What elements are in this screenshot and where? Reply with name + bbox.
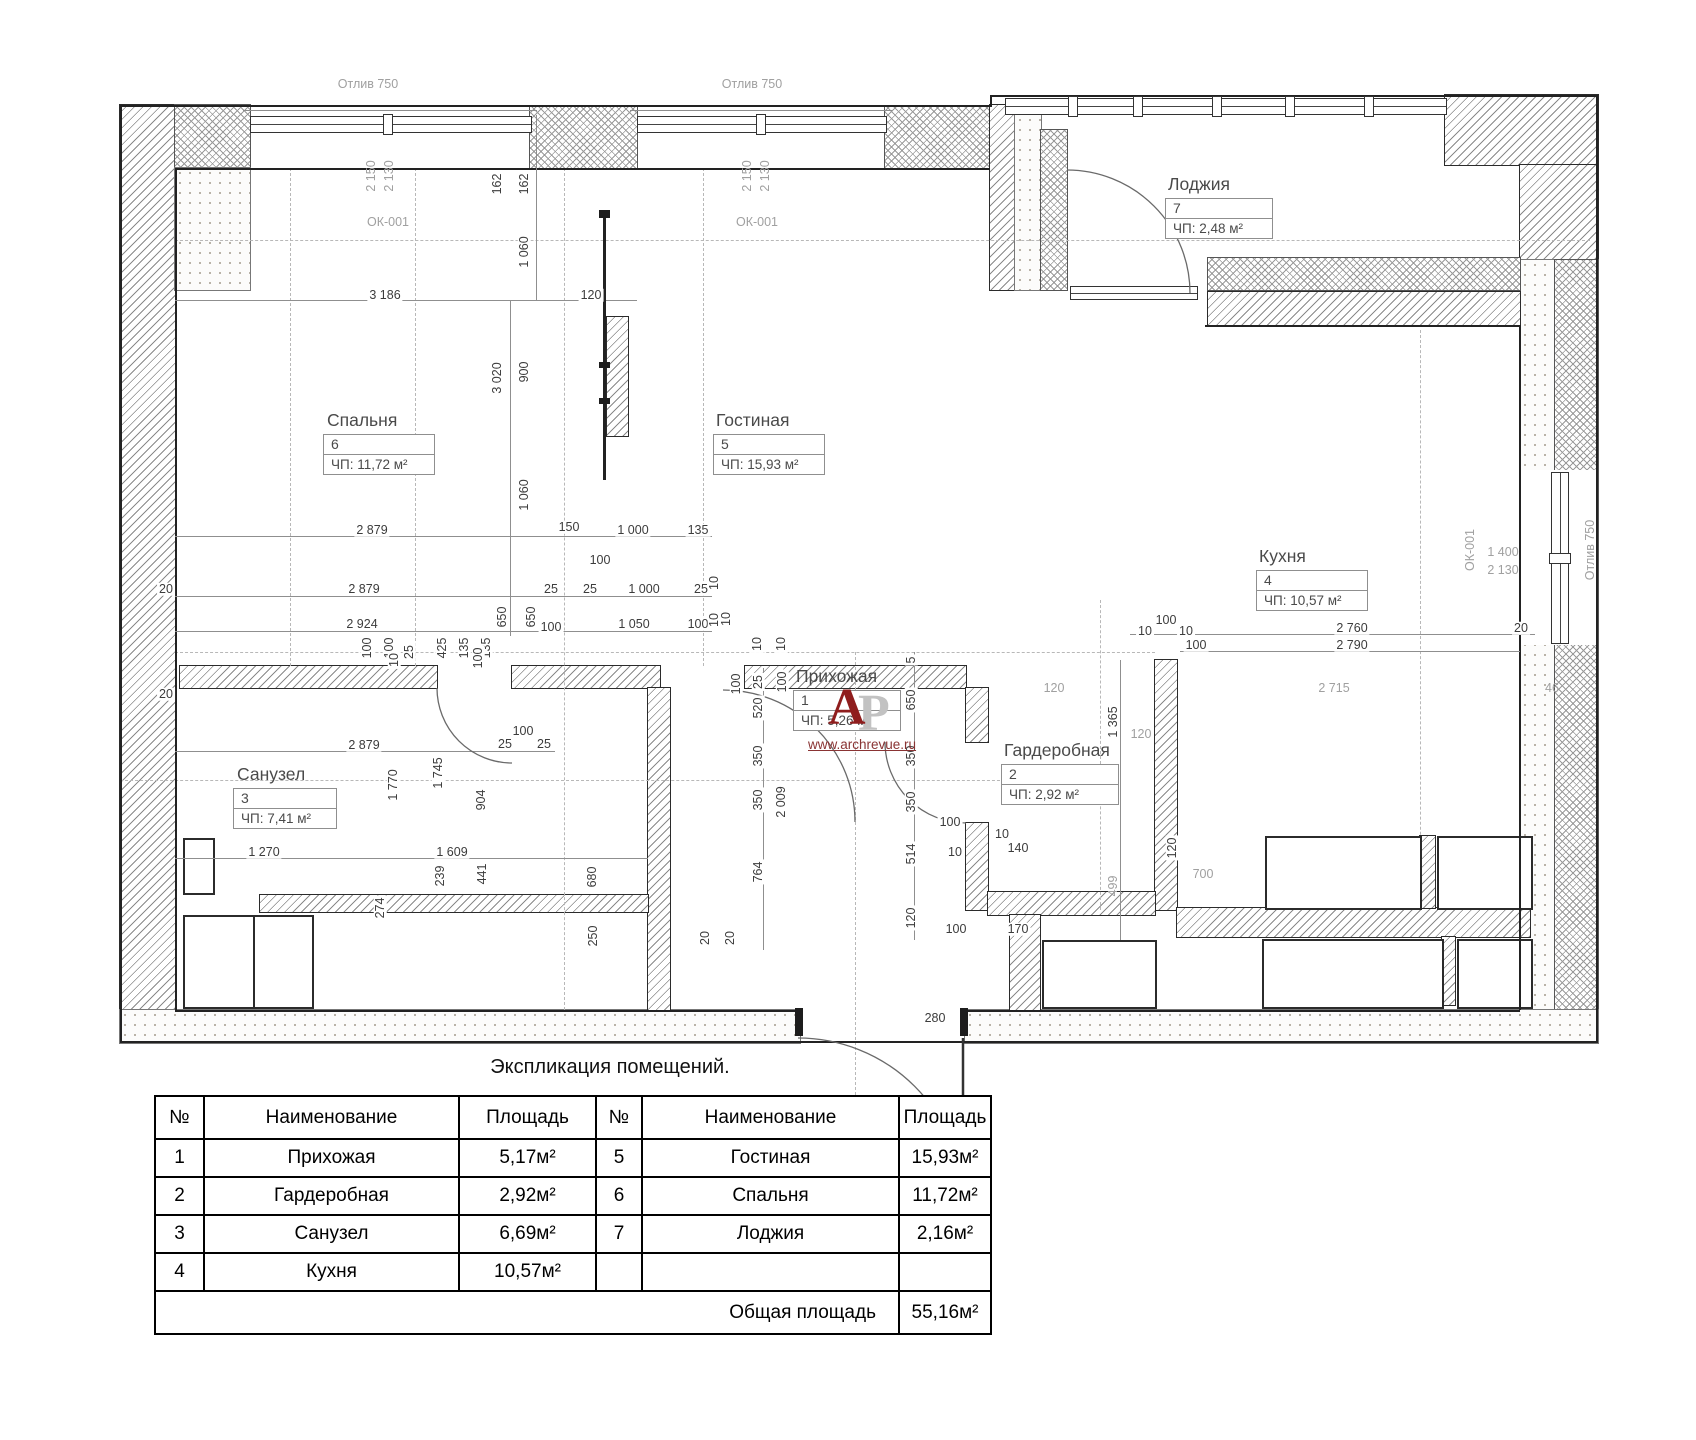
dimension-label: 10 [946, 846, 964, 859]
dimension-label: 10 [720, 610, 733, 628]
dimension-label: 20 [157, 583, 175, 596]
dimension-label: 100 [944, 923, 969, 936]
dimension-label: 1 770 [387, 767, 400, 802]
table-cell: Лоджия [642, 1215, 899, 1253]
dimension-label: 3 186 [367, 289, 402, 302]
dimension-label: 10 [751, 635, 764, 653]
dimension-label: 3 020 [491, 360, 504, 395]
table-cell: 3 [155, 1215, 204, 1253]
room-area: ЧП: 2,92 м² [1002, 785, 1118, 804]
dimension-label: 135 [458, 636, 471, 661]
door-frame [795, 1008, 803, 1036]
dimension-label: 650 [525, 605, 538, 630]
room-tag: 2ЧП: 2,92 м² [1001, 764, 1119, 805]
room-tag: 4ЧП: 10,57 м² [1256, 570, 1368, 611]
table-header-cell: № [596, 1096, 642, 1139]
dimension-label: 100 [539, 621, 564, 634]
table-title: Экспликация помещений. [420, 1056, 800, 1079]
dimension-label: 10 [708, 574, 721, 592]
dimension-label: Отлив 750 [720, 78, 784, 91]
dimension-label: 2 130 [383, 158, 396, 193]
dimension-label: 100 [1184, 639, 1209, 652]
dimension-label: 274 [374, 896, 387, 921]
dimension-label: 1 609 [434, 846, 469, 859]
watermark-url: www.archrevue.ru [808, 738, 916, 752]
dimension-label: 1 060 [518, 234, 531, 269]
table-cell [596, 1253, 642, 1291]
partition-stop [599, 362, 610, 368]
dimension-label: 1 365 [1107, 704, 1120, 739]
total-label: Общая площадь [155, 1291, 899, 1334]
room-area: ЧП: 10,57 м² [1257, 591, 1367, 610]
dimension-label: ОК-001 [734, 216, 780, 229]
table-cell: 6 [596, 1177, 642, 1215]
window-mullion [383, 114, 393, 135]
dimension-label: 764 [752, 860, 765, 885]
dimension-label: 46 [1543, 682, 1561, 695]
window-mullion [1133, 96, 1143, 117]
dimension-label: 2 790 [1334, 639, 1369, 652]
table-cell [899, 1253, 991, 1291]
table-header-cell: № [155, 1096, 204, 1139]
dimension-label: 1 400 [1485, 546, 1520, 559]
room-number: 2 [1002, 765, 1118, 785]
dimension-label: 680 [586, 865, 599, 890]
dimension-label: 350 [905, 790, 918, 815]
room-area: ЧП: 7,41 м² [234, 809, 336, 828]
table-cell: 10,57м² [459, 1253, 596, 1291]
table-row: 4Кухня10,57м² [155, 1253, 991, 1291]
partition-stop [599, 398, 610, 404]
window-mullion [1549, 553, 1571, 564]
dimension-label: 120 [905, 906, 918, 931]
dimension-label: 100 [511, 725, 536, 738]
dimension-label: 10 [993, 828, 1011, 841]
table-cell: 5,17м² [459, 1139, 596, 1177]
table-cell: 2,16м² [899, 1215, 991, 1253]
room-number: 6 [324, 435, 434, 455]
room-tag: 6ЧП: 11,72 м² [323, 434, 435, 475]
dimension-label: 20 [724, 929, 737, 947]
dimension-label: 100 [1154, 614, 1179, 627]
dimension-label: 441 [476, 862, 489, 887]
dimension-label: 170 [1006, 923, 1031, 936]
dimension-label: 2 924 [344, 618, 379, 631]
dimension-label: 1 050 [616, 618, 651, 631]
dimension-label: 2 715 [1316, 682, 1351, 695]
table-cell: Кухня [204, 1253, 459, 1291]
dimension-label: 20 [699, 929, 712, 947]
table-cell: 2,92м² [459, 1177, 596, 1215]
dimension-label: 1 060 [518, 477, 531, 512]
window-mullion [1212, 96, 1222, 117]
table-cell: Санузел [204, 1215, 459, 1253]
room-name: Спальня [327, 412, 397, 430]
dimension-label: ОК-001 [1464, 527, 1477, 573]
dimension-label: 10 [1136, 625, 1154, 638]
dimension-label: 10 [388, 651, 401, 669]
room-area: ЧП: 11,72 м² [324, 455, 434, 474]
dimension-label: 2 879 [346, 583, 381, 596]
dimension-label: 25 [403, 643, 416, 661]
room-name: Кухня [1259, 548, 1306, 566]
table-header-row: №НаименованиеПлощадь№НаименованиеПлощадь [155, 1096, 991, 1139]
dimension-label: 250 [587, 924, 600, 949]
room-area: ЧП: 15,93 м² [714, 455, 824, 474]
window-mullion [1285, 96, 1295, 117]
dimension-label: 2 130 [1485, 564, 1520, 577]
dimension-label: 350 [752, 744, 765, 769]
table-cell: 5 [596, 1139, 642, 1177]
dimension-label: 2 130 [759, 158, 772, 193]
dimension-label: 280 [923, 1012, 948, 1025]
dimension-label: 100 [776, 670, 789, 695]
dimension-label: 1 270 [246, 846, 281, 859]
dimension-label: 135 [686, 524, 711, 537]
room-number: 7 [1166, 199, 1272, 219]
dimension-label: 520 [752, 696, 765, 721]
partition-stop [599, 210, 610, 218]
dimension-label: 514 [905, 842, 918, 867]
dimension-label: 2 760 [1334, 622, 1369, 635]
dimension-label: 162 [518, 172, 531, 197]
dimension-label: 150 [557, 521, 582, 534]
room-number: 3 [234, 789, 336, 809]
dimension-label: 10 [775, 635, 788, 653]
table-cell: 6,69м² [459, 1215, 596, 1253]
dimension-label: 100 [730, 672, 743, 697]
room-tag: 5ЧП: 15,93 м² [713, 434, 825, 475]
explication-table: №НаименованиеПлощадь№НаименованиеПлощадь… [154, 1095, 992, 1335]
dimension-label: 20 [1512, 622, 1530, 635]
dimension-label: ОК-001 [365, 216, 411, 229]
room-name: Гардеробная [1004, 742, 1110, 760]
door-frame [960, 1008, 968, 1036]
dimension-label: 900 [518, 360, 531, 385]
dimension-label: 239 [434, 864, 447, 889]
table-header-cell: Площадь [459, 1096, 596, 1139]
dimension-label: 2 150 [741, 158, 754, 193]
window-mullion [756, 114, 766, 135]
total-value: 55,16м² [899, 1291, 991, 1334]
dimension-label: 700 [1191, 868, 1216, 881]
room-number: 5 [714, 435, 824, 455]
table-row: 2Гардеробная2,92м²6Спальня11,72м² [155, 1177, 991, 1215]
room-number: 4 [1257, 571, 1367, 591]
dimension-label: 2 879 [354, 524, 389, 537]
dimension-label: 25 [581, 583, 599, 596]
table-cell: Гардеробная [204, 1177, 459, 1215]
room-name: Гостиная [716, 412, 789, 430]
table-cell: 1 [155, 1139, 204, 1177]
dimension-label: 100 [472, 646, 485, 671]
table-cell: 11,72м² [899, 1177, 991, 1215]
dimension-label: 499 [1107, 874, 1120, 899]
dimension-label: 350 [752, 788, 765, 813]
dimension-label: 650 [496, 605, 509, 630]
window-mullion [1364, 96, 1374, 117]
dimension-label: 100 [938, 816, 963, 829]
room-name: Лоджия [1168, 176, 1230, 194]
table-header-cell: Площадь [899, 1096, 991, 1139]
table-header-cell: Наименование [204, 1096, 459, 1139]
dimension-label: 120 [579, 289, 604, 302]
table-cell: Прихожая [204, 1139, 459, 1177]
dimension-label: 2 150 [365, 158, 378, 193]
table-header-cell: Наименование [642, 1096, 899, 1139]
room-tag: 3ЧП: 7,41 м² [233, 788, 337, 829]
floor-plan-sheet: Спальня6ЧП: 11,72 м²Гостиная5ЧП: 15,93 м… [0, 0, 1696, 1440]
dimension-label: 140 [1006, 842, 1031, 855]
dimension-label: 1 000 [615, 524, 650, 537]
table-total-row: Общая площадь 55,16м² [155, 1291, 991, 1334]
dimension-label: 2 879 [346, 739, 381, 752]
dimension-label: 25 [752, 673, 765, 691]
window-mullion [1068, 96, 1078, 117]
dimension-label: Отлив 750 [1584, 518, 1597, 582]
table-cell: Гостиная [642, 1139, 899, 1177]
dimension-label: 904 [475, 788, 488, 813]
dimension-label: 120 [1042, 682, 1067, 695]
dimension-label: 10 [1177, 625, 1195, 638]
dimension-label: 100 [361, 636, 374, 661]
room-tag: 7ЧП: 2,48 м² [1165, 198, 1273, 239]
dimension-label: 5 [905, 655, 918, 666]
table-row: 1Прихожая5,17м²5Гостиная15,93м² [155, 1139, 991, 1177]
dimension-label: 1 000 [626, 583, 661, 596]
dimension-label: 1 745 [432, 755, 445, 790]
dimension-label: 25 [535, 738, 553, 751]
dimension-label: 162 [491, 172, 504, 197]
dimension-label: 650 [905, 688, 918, 713]
table-cell: 7 [596, 1215, 642, 1253]
room-area: ЧП: 2,48 м² [1166, 219, 1272, 238]
dimension-label: 100 [588, 554, 613, 567]
table-row: 3Санузел6,69м²7Лоджия2,16м² [155, 1215, 991, 1253]
dimension-label: 425 [436, 636, 449, 661]
watermark-letter-a: А [828, 682, 866, 734]
table-cell: Спальня [642, 1177, 899, 1215]
dimension-label: 25 [542, 583, 560, 596]
dimension-label: 2 009 [775, 784, 788, 819]
room-name: Санузел [237, 766, 305, 784]
table-cell: 4 [155, 1253, 204, 1291]
table-cell: 15,93м² [899, 1139, 991, 1177]
dimension-label: 20 [157, 688, 175, 701]
dimension-label: Отлив 750 [336, 78, 400, 91]
table-cell [642, 1253, 899, 1291]
dimension-label: 120 [1166, 836, 1179, 861]
dimension-label: 25 [496, 738, 514, 751]
table-cell: 2 [155, 1177, 204, 1215]
dimension-label: 120 [1129, 728, 1154, 741]
